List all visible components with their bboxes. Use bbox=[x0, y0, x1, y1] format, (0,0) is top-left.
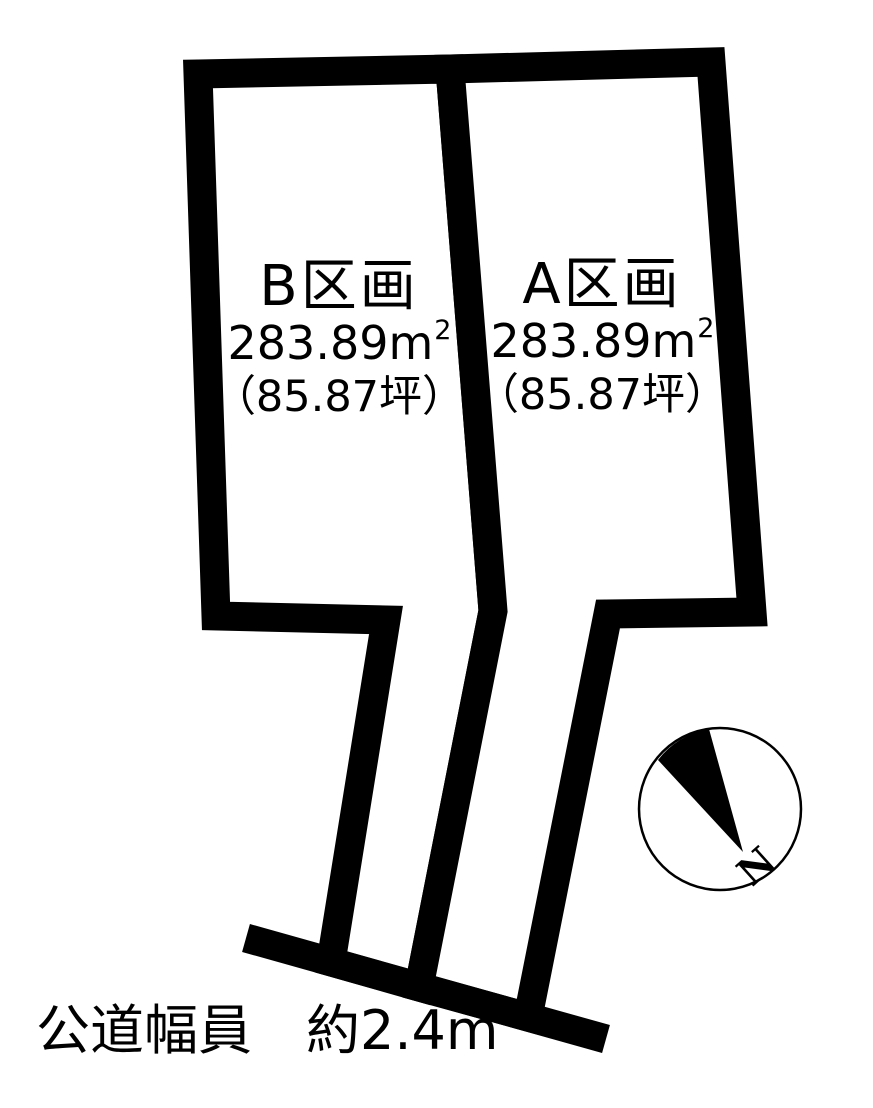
plot-a-area-unit: m bbox=[651, 314, 696, 368]
plot-a-area-exponent: 2 bbox=[697, 313, 714, 344]
plot-a-title: A区画 bbox=[437, 254, 767, 316]
plot-a-area-value: 283.89 bbox=[491, 314, 652, 368]
road-width-label: 公道幅員 約2.4m bbox=[36, 1002, 498, 1060]
plot-a-tsubo: （85.87坪） bbox=[437, 372, 767, 419]
plot-a-area: 283.89m2 bbox=[437, 318, 767, 372]
compass: N bbox=[639, 728, 801, 894]
land-plot-diagram: N B区画 283.89m2 （85.87坪） A区画 283.89m2 （85… bbox=[0, 0, 873, 1108]
plot-outline-drawing: N bbox=[0, 0, 873, 1108]
plot-a-info: A区画 283.89m2 （85.87坪） bbox=[437, 254, 767, 419]
plot-b-area-unit: m bbox=[388, 316, 433, 370]
plot-b-area-value: 283.89 bbox=[228, 316, 389, 370]
